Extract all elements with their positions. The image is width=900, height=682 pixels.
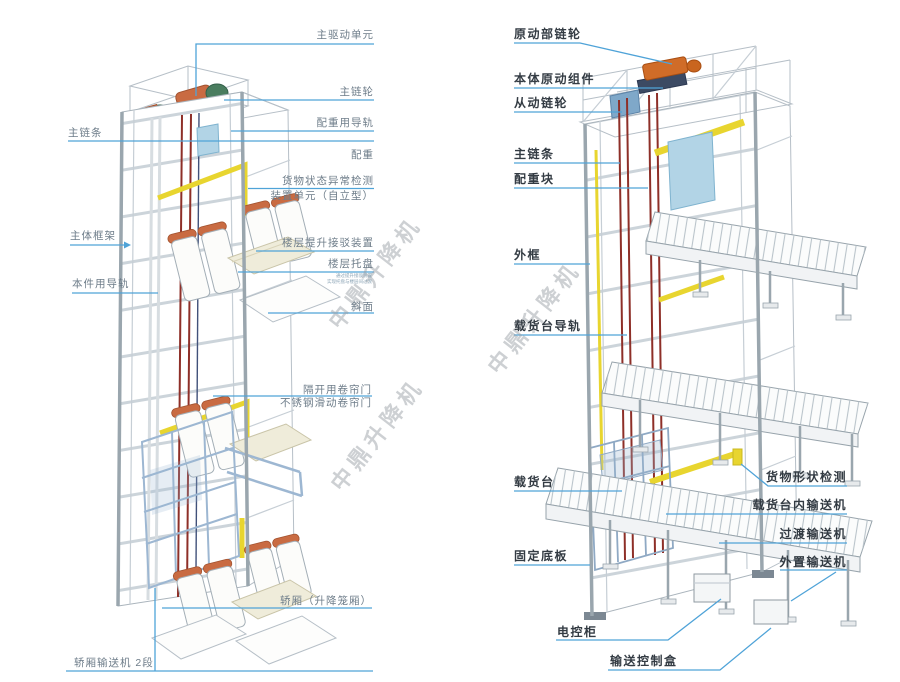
label-platform-conveyor: 载货台内输送机 <box>752 499 847 512</box>
label-main-chain: 主链条 <box>68 127 103 140</box>
label-unit-guide-rail: 本件用导轨 <box>72 278 130 291</box>
left-machine-illustration <box>118 66 340 664</box>
label-cage: 轿厢（升降笼厢） <box>280 595 372 608</box>
label-ss-door: 不锈钢滑动卷帘门 <box>280 397 372 410</box>
control-cabinet-box <box>694 574 730 602</box>
label-floor-docking: 楼层提升接驳装置 <box>282 237 374 250</box>
label-main-frame: 主体框架 <box>70 230 116 243</box>
label-slope: 斜面 <box>351 301 374 314</box>
label-shape-detect: 货物形状检测 <box>766 471 847 484</box>
label-main-sprocket: 主链轮 <box>340 86 375 99</box>
label-cw-block: 配重块 <box>514 173 555 186</box>
label-cargo-detect-1: 货物状态异常检测 <box>282 175 374 188</box>
label-outer-frame: 外框 <box>514 249 541 262</box>
conveyor-control-box-shape <box>754 600 788 624</box>
label-base-plate: 固定底板 <box>514 550 568 563</box>
label-driven-sprocket: 从动链轮 <box>514 97 568 110</box>
label-drive-sprocket: 原动部链轮 <box>514 28 582 41</box>
label-external-conveyor: 外置输送机 <box>779 556 847 569</box>
label-main-chain-right: 主链条 <box>514 148 555 161</box>
label-tray-note-2: 实现托盘与楼层间过渡 <box>327 279 372 285</box>
label-cw-guide-rail: 配重用导轨 <box>317 117 375 130</box>
label-conveyor-control-box: 输送控制盒 <box>610 655 678 668</box>
label-control-cabinet: 电控柜 <box>557 626 598 639</box>
label-transition-conveyor: 过渡输送机 <box>779 528 847 541</box>
label-cage-conveyor: 轿厢输送机 2段 <box>74 657 154 670</box>
label-platform-rail: 载货台导轨 <box>514 320 582 333</box>
label-cargo-detect-2: 装置单元（自立型） <box>271 190 375 203</box>
label-floor-tray: 楼层托盘 <box>328 258 374 271</box>
diagram-page: 中鼎升降机 中鼎升降机 中鼎升降机 主驱动单元 主链轮 配重用导轨 配重 货物状… <box>0 0 900 682</box>
label-roller-door: 隔开用卷帘门 <box>303 384 372 397</box>
label-drive-assembly: 本体原动组件 <box>514 73 595 86</box>
label-counterweight: 配重 <box>351 149 374 162</box>
label-platform: 载货台 <box>514 476 555 489</box>
diagram-canvas <box>0 0 900 682</box>
label-main-drive-unit: 主驱动单元 <box>317 29 375 42</box>
